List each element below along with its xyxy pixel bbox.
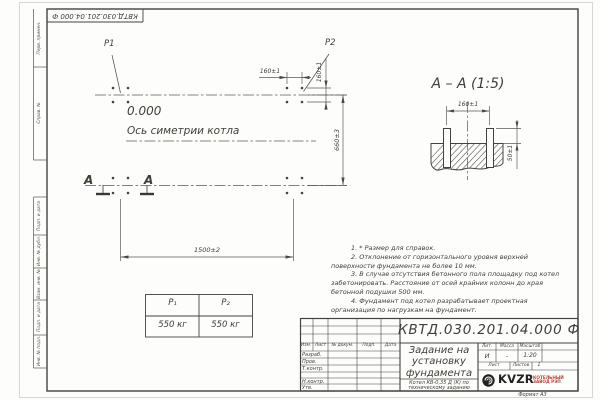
dim-height-660: 660±3 <box>334 129 341 151</box>
doc-subtitle: Котел КВ-0,35 Д (К) по техническому зада… <box>402 381 476 393</box>
dim-660-lines <box>308 95 347 186</box>
kvzr-logo-text: KVZR <box>498 374 534 386</box>
col-izm: Изм. <box>299 344 313 348</box>
plan-bolt-points <box>112 87 304 195</box>
scale-value: 1:20 <box>518 353 542 359</box>
margin-label-inv-dubl: Инв. № дубл. <box>38 236 42 266</box>
margin-label-podp-data-2: Подп. и дата <box>38 302 42 332</box>
row-prov: Пров. <box>302 360 317 365</box>
kvzr-logo-icon <box>480 372 497 389</box>
doc-title: Задание на установку фундамента <box>400 345 478 379</box>
section-letter-a1: А <box>84 174 93 186</box>
load-table-value-p2: 550 кг <box>199 321 252 330</box>
doc-title-line-2: установку <box>400 356 478 367</box>
technical-notes: 1. * Размер для справок. 2. Отклонение о… <box>331 244 571 314</box>
drawing-sheet: КВТД.030.201.04.000 Ф Перв. примен. Спра… <box>0 0 600 400</box>
lit-value: И <box>478 353 496 360</box>
section-title: А – А (1:5) <box>408 77 528 91</box>
load-label-p2: P2 <box>325 39 336 48</box>
sheets-label: Листов <box>510 364 532 368</box>
note-2: 2. Отклонение от горизонтального уровня … <box>331 253 571 271</box>
note-3: 3. В случае отсутствия бетонного пола пл… <box>331 270 571 296</box>
section-letter-a2: А <box>144 174 153 186</box>
doc-title-line-3: фундамента <box>400 368 478 379</box>
load-leader-lines <box>112 54 329 93</box>
kvzr-caption-line-2: ЗАВОД РЭП <box>533 380 564 385</box>
dim-section-bolt-spacing: 160±1 <box>448 102 488 108</box>
margin-label-inv-podl: Инв. № подл. <box>38 336 42 366</box>
load-table-header-p1: P₁ <box>146 299 199 308</box>
margin-label-sprav-no: Справ. № <box>38 102 42 123</box>
margin-label-podp-data-1: Подп. и дата <box>38 201 42 231</box>
plan-centerlines <box>85 95 347 186</box>
section-anchor-bolts <box>444 129 494 168</box>
dim-width-1500: 1500±2 <box>167 247 247 254</box>
lit-header: Лит. <box>478 345 496 349</box>
note-1: 1. * Размер для справок. <box>331 244 571 253</box>
kvzr-logo-caption: КОТЕЛЬНЫЙ ЗАВОД РЭП <box>533 376 564 386</box>
load-table-header-p2: P₂ <box>199 299 252 308</box>
load-label-p1: P1 <box>104 40 115 49</box>
mass-header: Масса <box>496 345 518 349</box>
scale-header: Масштаб <box>518 345 542 349</box>
dim-bolt-protrusion: 50±1 <box>508 145 514 161</box>
margin-label-vzam-inv: Взам. инв. № <box>38 269 42 299</box>
dim-bolt-spacing-y: 160±1 <box>317 62 323 82</box>
row-tkontr: Т.контр. <box>302 367 324 372</box>
sheet-label: Лист <box>478 364 510 368</box>
sheets-value: 1 <box>532 363 546 368</box>
mass-value: - <box>496 353 518 360</box>
dim-bolt-spacing-x: 160±1 <box>256 69 284 75</box>
boiler-axis-label: Ось симетрии котла <box>127 126 239 137</box>
top-stamp-doc-number: КВТД.030.201.04.000 Ф <box>47 9 143 22</box>
col-dokum: № докум. <box>328 344 357 348</box>
col-podp: Подп. <box>357 344 381 348</box>
margin-label-perv-primen: Перв. примен. <box>38 22 42 55</box>
col-list: Лист <box>313 344 328 348</box>
format-label: Формат А3 <box>505 393 560 398</box>
load-table-value-p1: 550 кг <box>146 321 199 330</box>
row-nkontr: Н.контр. <box>302 380 324 385</box>
note-4: 4. Фундамент под котел разрабатывает про… <box>331 297 571 315</box>
title-block-doc-number: КВТД.030.201.04.000 Ф <box>402 319 576 342</box>
row-razrab: Разраб. <box>302 353 322 358</box>
col-data: Дата <box>381 344 400 348</box>
dim-sec160-lines <box>447 106 490 125</box>
elevation-mark: 0.000 <box>127 105 161 117</box>
row-utv: Утв. <box>302 386 313 391</box>
doc-title-line-1: Задание на <box>400 345 478 356</box>
